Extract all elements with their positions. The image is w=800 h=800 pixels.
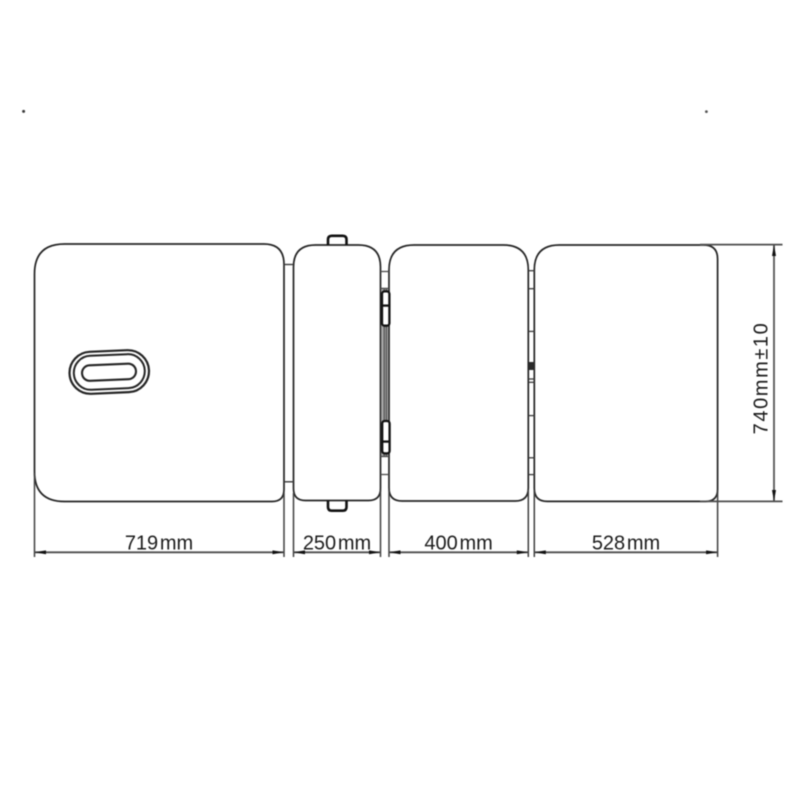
svg-text:528 mm: 528 mm xyxy=(592,532,660,554)
svg-text:400 mm: 400 mm xyxy=(424,532,492,554)
svg-text:250 mm: 250 mm xyxy=(303,532,371,554)
svg-text:740mm±10: 740mm±10 xyxy=(750,322,772,435)
svg-text:719 mm: 719 mm xyxy=(125,532,193,554)
